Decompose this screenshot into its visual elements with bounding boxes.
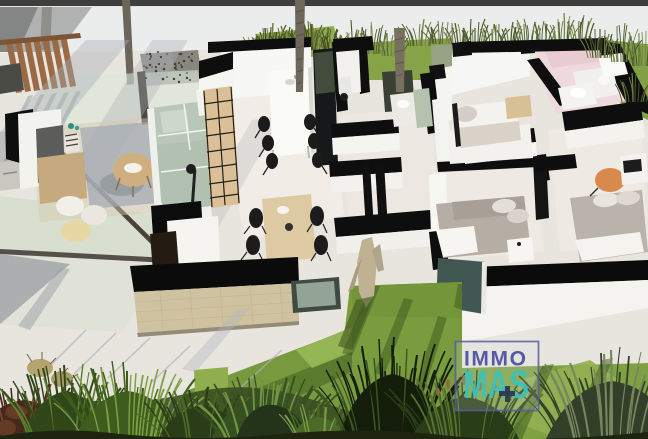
svg-text:MAS: MAS: [463, 363, 529, 407]
